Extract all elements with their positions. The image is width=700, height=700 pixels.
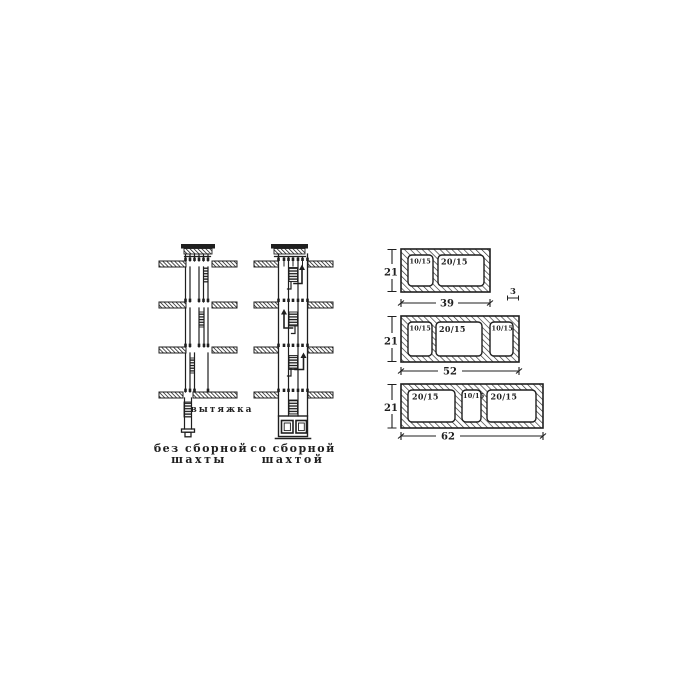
height-dimension-label: 21	[384, 337, 398, 348]
floor-slabs	[159, 261, 237, 398]
right-shaft-caption-line2: шахтой	[262, 453, 325, 466]
exhaust-label: вытяжка	[191, 405, 254, 415]
opening-size-label: 20/15	[412, 392, 439, 402]
right-shaft-diagram: со сборной шахтой	[250, 244, 335, 466]
width-dimension-label: 62	[441, 432, 455, 443]
opening-size-label: 10/15	[410, 258, 432, 266]
ventilation-diagram: вытяжка без сборной шахты	[0, 0, 700, 700]
shaft-bottom-fitting	[182, 429, 195, 437]
opening-size-label: 10/15	[463, 392, 485, 400]
left-shaft-caption-line2: шахты	[171, 453, 227, 466]
opening-size-label: 20/15	[491, 392, 518, 402]
height-dimension-label: 21	[384, 268, 398, 279]
left-shaft-diagram: вытяжка без сборной шахты	[154, 244, 254, 466]
height-dimension-label: 21	[384, 403, 398, 414]
opening-size-label: 20/15	[441, 257, 468, 267]
opening-size-label: 10/15	[410, 325, 432, 333]
shaft-base-block	[276, 416, 311, 439]
block-section-3: 20/15 10/15 20/15 21 62	[384, 384, 546, 443]
width-dimension	[398, 367, 522, 375]
figure-page: вытяжка без сборной шахты	[0, 0, 700, 700]
wall-thickness-label: 3	[510, 287, 516, 297]
block-section-1: 10/15 20/15 21 39 3	[384, 249, 518, 310]
width-dimension	[398, 432, 546, 440]
opening-size-label: 10/15	[492, 325, 514, 333]
shaft-cap-icon	[271, 244, 308, 257]
width-dimension-label: 39	[440, 299, 454, 310]
width-dimension-label: 52	[443, 367, 457, 378]
block-section-2: 10/15 20/15 10/15 21 52	[384, 316, 522, 378]
opening-size-label: 20/15	[439, 324, 466, 334]
